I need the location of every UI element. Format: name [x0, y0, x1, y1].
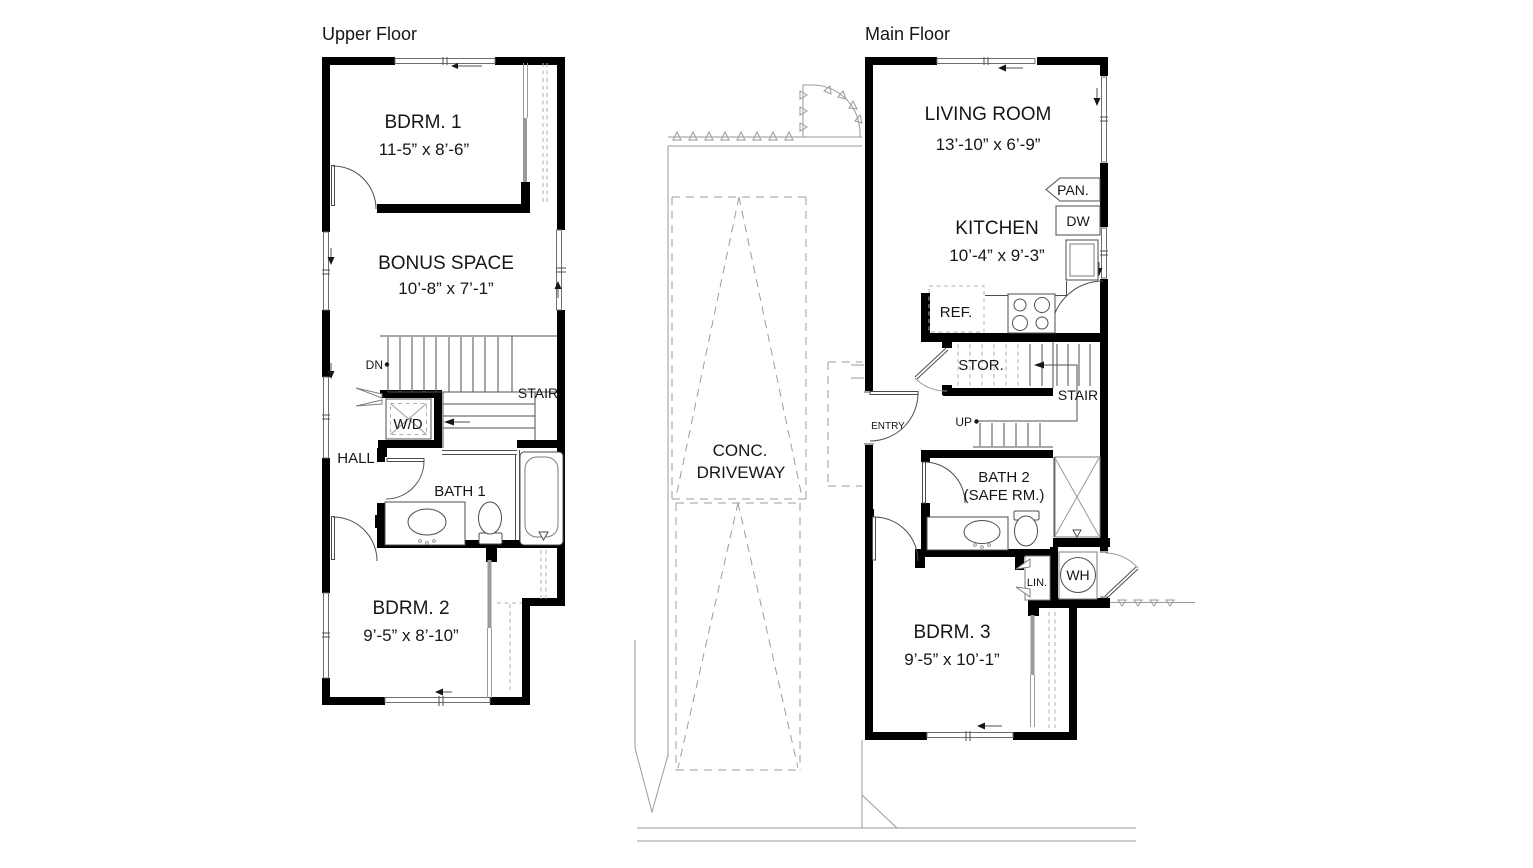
bath2-door — [923, 462, 966, 503]
kitchen-label: KITCHEN — [955, 218, 1038, 239]
corner-cabinet-arc — [1051, 281, 1103, 333]
bdrm1-door — [332, 166, 377, 210]
bath1-door — [386, 459, 424, 500]
living-room-dims: 13’-10” x 6’-9” — [936, 135, 1041, 154]
side-fence — [1110, 600, 1195, 606]
bdrm2-label: BDRM. 2 — [372, 598, 449, 619]
main-floor-plan: Main Floor — [864, 24, 1195, 741]
bdrm1-label: BDRM. 1 — [384, 112, 461, 133]
bdrm3-closet — [1031, 612, 1056, 728]
floor-plan-drawing: CONC. DRIVEWAY Upper Floor — [0, 0, 1533, 868]
bath1-label: BATH 1 — [434, 483, 485, 500]
oven — [1066, 240, 1098, 280]
upper-floor-plan: Upper Floor — [321, 24, 566, 706]
dn-dot — [385, 362, 389, 366]
bonus-space-dims: 10’-8” x 7’-1” — [398, 279, 494, 298]
upper-floor-title: Upper Floor — [322, 24, 417, 44]
upper-stair-label: STAIR — [518, 385, 558, 401]
kitchen-dims: 10’-4” x 9’-3” — [949, 246, 1045, 265]
bonus-space-label: BONUS SPACE — [378, 253, 514, 274]
driveway-outline — [635, 146, 897, 828]
main-stair-label: STAIR — [1058, 387, 1098, 403]
street-lines — [637, 828, 1136, 841]
entry-label: ENTRY — [871, 421, 905, 432]
floor-plan-sheet: CONC. DRIVEWAY Upper Floor — [0, 0, 1533, 868]
up-dot — [974, 419, 978, 423]
bath2-sub-label: (SAFE RM.) — [964, 487, 1045, 504]
entry-door — [870, 392, 918, 442]
bath1-sink — [408, 509, 446, 535]
bdrm3-label: BDRM. 3 — [913, 622, 990, 643]
bath1-toilet — [479, 502, 503, 544]
dn-label: DN — [366, 358, 383, 372]
bath2-vanity — [927, 517, 1008, 550]
wh-door — [1105, 553, 1138, 598]
counter-edge — [985, 281, 1067, 296]
storage-label: STOR. — [958, 357, 1004, 374]
bdrm3-dims: 9’-5” x 10’-1” — [904, 650, 1000, 669]
gate — [800, 85, 862, 137]
bdrm2-closet — [488, 550, 547, 698]
bath2-label: BATH 2 — [978, 469, 1029, 486]
wd-bifold-door — [356, 388, 382, 406]
bath2-toilet — [1014, 511, 1039, 546]
linen-label: LIN. — [1027, 577, 1047, 589]
wd-label: W/D — [393, 416, 422, 433]
bdrm2-door — [332, 517, 378, 562]
main-floor-title: Main Floor — [865, 24, 950, 44]
shower — [1054, 457, 1100, 537]
up-label: UP — [955, 415, 972, 429]
bdrm1-dims: 11-5” x 8’-6” — [379, 140, 470, 159]
driveway-label-line2: DRIVEWAY — [697, 463, 786, 482]
dishwasher-label: DW — [1066, 213, 1090, 229]
driveway-dashed-bays — [672, 197, 806, 770]
living-room-label: LIVING ROOM — [925, 104, 1052, 125]
driveway-label-line1: CONC. — [713, 441, 768, 460]
bath2-sink — [964, 521, 1000, 544]
pantry-label: PAN. — [1057, 182, 1089, 198]
fence-line — [668, 132, 862, 140]
stove — [1008, 294, 1055, 333]
refrigerator-label: REF. — [940, 304, 973, 321]
bdrm2-dims: 9’-5” x 8’-10” — [363, 626, 459, 645]
entry-porch — [828, 362, 864, 486]
wh-label: WH — [1066, 567, 1089, 583]
hall-label: HALL — [337, 450, 375, 467]
bath1-vanity — [385, 502, 465, 545]
bath1-tub — [516, 450, 564, 545]
storage-door — [915, 348, 948, 391]
bdrm3-door — [873, 517, 919, 561]
